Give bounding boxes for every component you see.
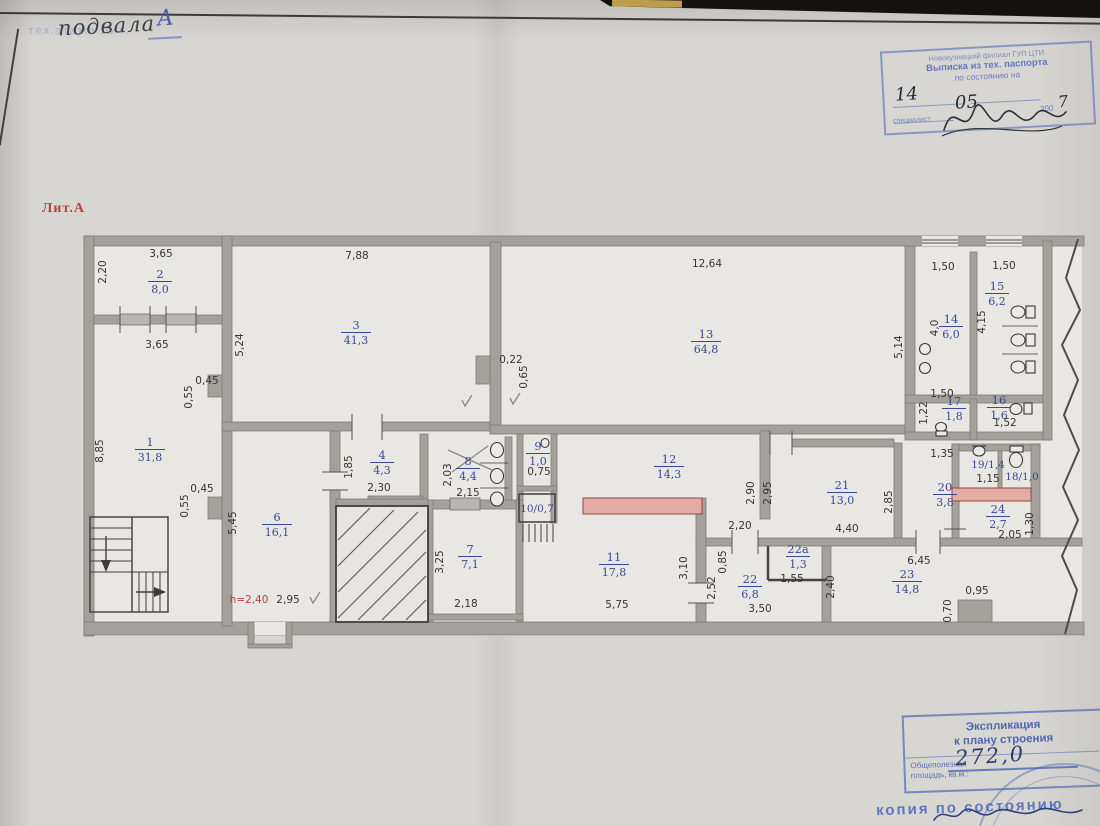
dimension-label: 5,24 xyxy=(234,333,246,357)
dimension-label: 2,90 xyxy=(745,481,757,504)
scanned-floorplan-page: тех.этажа Лит. подвала А Лит.А Новокузне… xyxy=(0,0,1100,826)
room-label-10: 10/0,7 xyxy=(520,503,554,515)
dimension-label: 4,40 xyxy=(835,523,858,535)
bottom-signature-stroke xyxy=(930,804,1090,826)
room-area-22a: 1,3 xyxy=(789,558,807,571)
floor-plan: 131,828,0341,344,3616,177,184,491,01117,… xyxy=(0,0,1100,826)
dimension-label: 1,50 xyxy=(992,260,1015,272)
room-number-2: 2 xyxy=(156,267,163,281)
room-area-2: 8,0 xyxy=(151,283,169,296)
dimension-label: 4,0 xyxy=(929,320,941,337)
room-area-4: 4,3 xyxy=(373,464,391,477)
room-area-11: 17,8 xyxy=(602,566,627,579)
dimension-label: 4,15 xyxy=(976,310,988,333)
room-number-9: 9 xyxy=(534,439,541,453)
dimension-label: 6,45 xyxy=(907,555,930,567)
hatched-room xyxy=(336,506,428,622)
dimension-label: 2,20 xyxy=(728,520,751,532)
room-number-8: 8 xyxy=(464,454,471,468)
dimension-label: 0,70 xyxy=(942,599,954,622)
dimension-label: 2,52 xyxy=(706,576,718,599)
dimension-label: 2,20 xyxy=(97,260,109,283)
room-area-20: 3,8 xyxy=(936,496,954,509)
dimension-label: 0,85 xyxy=(717,550,729,573)
dimension-label: 0,45 xyxy=(195,375,218,387)
room-area-3: 41,3 xyxy=(344,334,369,347)
dimension-label: 12,64 xyxy=(692,258,722,270)
room-label-19: 19/1,4 xyxy=(971,459,1005,471)
entry-recess xyxy=(248,622,292,648)
dimension-label: 2,95 xyxy=(762,481,774,504)
room-area-17: 1,8 xyxy=(945,410,963,423)
room-area-13: 64,8 xyxy=(694,343,719,356)
room-number-22: 22 xyxy=(743,572,758,586)
room-number-21: 21 xyxy=(835,478,850,492)
room-number-7: 7 xyxy=(466,542,473,556)
room-area-22: 6,8 xyxy=(741,588,759,601)
room-number-11: 11 xyxy=(607,550,622,564)
room-number-24: 24 xyxy=(991,502,1006,516)
dimension-label: 1,30 xyxy=(1024,512,1036,535)
dimension-label: 3,25 xyxy=(434,550,446,573)
dimension-label: 1,22 xyxy=(918,401,930,424)
room-number-14: 14 xyxy=(944,312,959,326)
dimension-label: 0,45 xyxy=(190,483,213,495)
dimension-label: 1,35 xyxy=(930,448,953,460)
room-number-13: 13 xyxy=(699,327,714,341)
dimension-label: 1,50 xyxy=(930,388,953,400)
dimension-label: 1,15 xyxy=(976,473,999,485)
dimension-label: 2,40 xyxy=(825,575,837,598)
dimension-label: 2,05 xyxy=(998,529,1021,541)
dimension-label: 5,45 xyxy=(227,511,239,534)
room-number-6: 6 xyxy=(273,510,280,524)
room-area-21: 13,0 xyxy=(830,494,855,507)
dimension-label: 3,65 xyxy=(145,339,168,351)
room-area-7: 7,1 xyxy=(461,558,479,571)
height-note: h=2,40 xyxy=(230,594,269,606)
dimension-label: 3,65 xyxy=(149,248,172,260)
room-area-14: 6,0 xyxy=(942,328,960,341)
dimension-label: 7,88 xyxy=(345,250,368,262)
room-number-23: 23 xyxy=(900,567,915,581)
dimension-label: 8,85 xyxy=(94,439,106,462)
dimension-label: 3,50 xyxy=(748,603,771,615)
room-number-20: 20 xyxy=(938,480,953,494)
room-number-4: 4 xyxy=(378,448,385,462)
room-area-15: 6,2 xyxy=(988,295,1006,308)
dimension-label: 5,14 xyxy=(893,335,905,359)
room-label-18: 18/1,0 xyxy=(1005,471,1039,483)
room-area-23: 14,8 xyxy=(895,583,920,596)
room-number-3: 3 xyxy=(352,318,359,332)
dimension-label: 0,65 xyxy=(518,365,530,388)
dimension-label: 0,75 xyxy=(527,466,550,478)
dimension-label: 2,95 xyxy=(276,594,299,606)
dimension-label: 0,55 xyxy=(179,494,191,517)
dimension-label: 1,50 xyxy=(931,261,954,273)
dimension-label: 2,30 xyxy=(367,482,390,494)
room-number-15: 15 xyxy=(990,279,1005,293)
dimension-label: 2,18 xyxy=(454,598,477,610)
dimension-label: 0,22 xyxy=(499,354,522,366)
dimension-label: 3,10 xyxy=(678,556,690,579)
room-number-1: 1 xyxy=(146,435,153,449)
room-area-6: 16,1 xyxy=(265,526,290,539)
dimension-label: 2,15 xyxy=(456,487,479,499)
dimension-label: 0,55 xyxy=(183,385,195,408)
room-number-16: 16 xyxy=(992,393,1007,407)
dimension-label: 1,52 xyxy=(993,417,1016,429)
dimension-label: 1,85 xyxy=(343,455,355,478)
dimension-label: 2,03 xyxy=(442,463,454,486)
dimension-label: 0,95 xyxy=(965,585,988,597)
room-number-22a: 22а xyxy=(787,542,809,556)
dimension-label: 5,75 xyxy=(605,599,628,611)
dimension-label: 2,85 xyxy=(883,490,895,513)
dimension-label: 1,55 xyxy=(780,573,803,585)
room-area-12: 14,3 xyxy=(657,468,682,481)
room-number-12: 12 xyxy=(662,452,677,466)
room-area-1: 31,8 xyxy=(138,451,163,464)
handwritten-total-area: 272,0 xyxy=(954,742,1026,771)
room-area-8: 4,4 xyxy=(459,470,477,483)
